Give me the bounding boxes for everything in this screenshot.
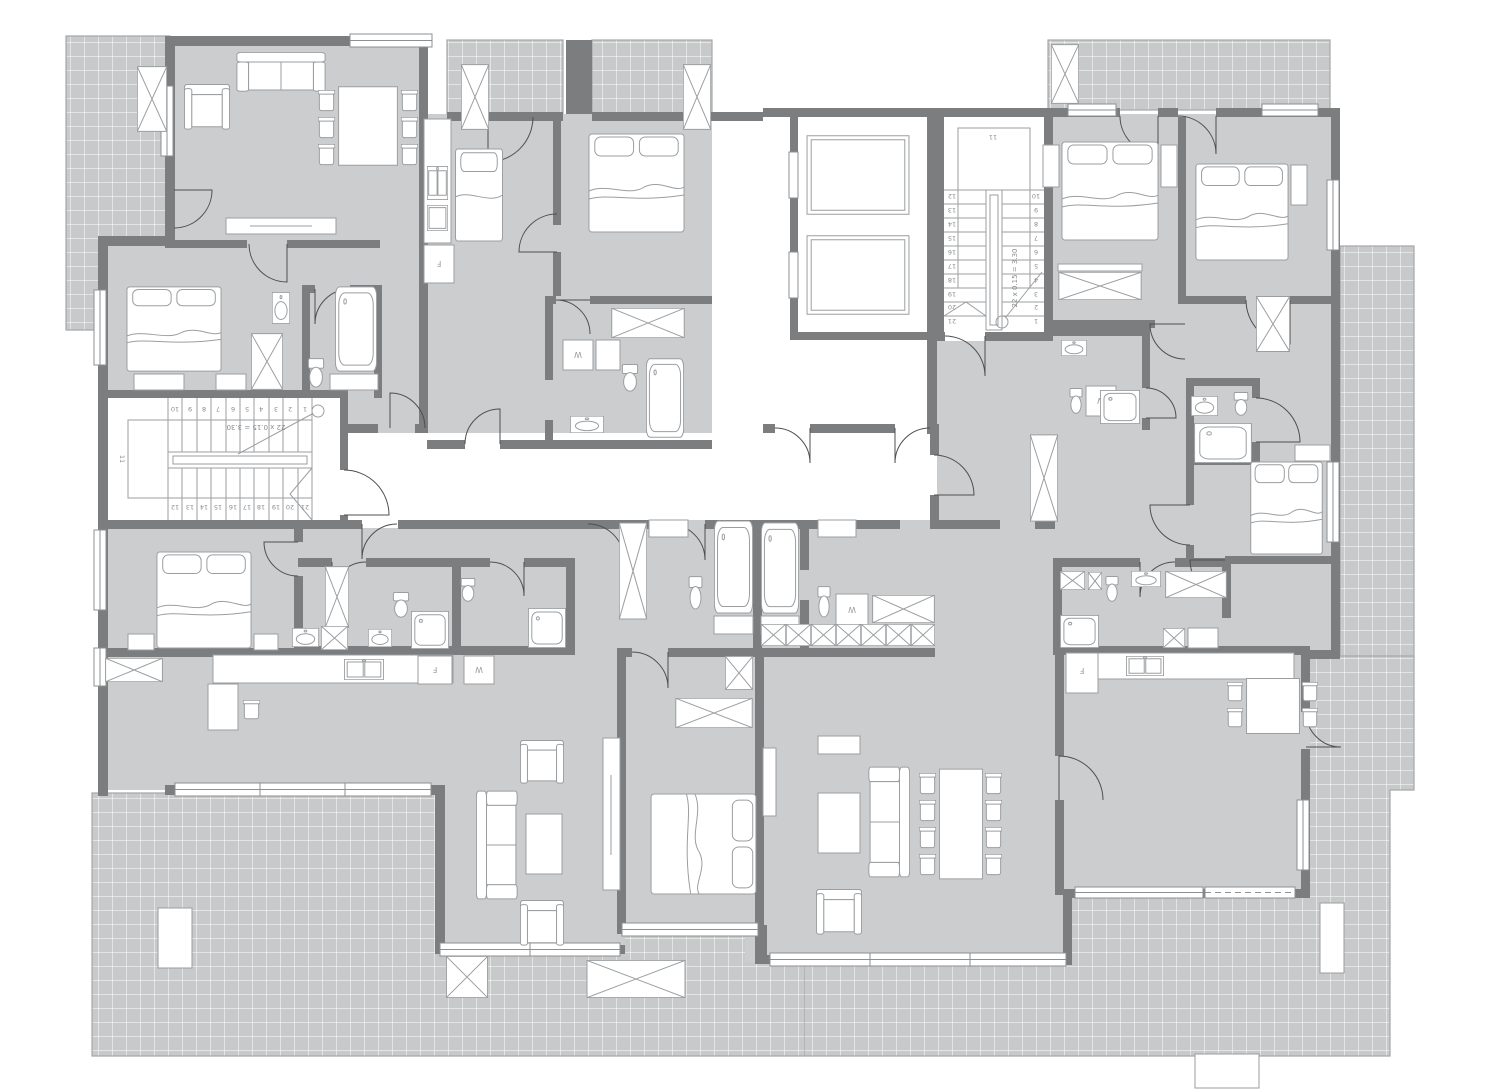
svg-text:19: 19: [948, 290, 956, 298]
chair: [919, 773, 936, 793]
chair: [919, 854, 936, 874]
nightstand: [1161, 145, 1177, 187]
stair-annotation: 22 x 0.15 = 3.30: [1011, 249, 1019, 308]
chair: [401, 90, 418, 110]
stair-handrail: [168, 452, 312, 468]
shower: [411, 611, 448, 648]
elevator-car: [807, 236, 909, 314]
nightstand: [134, 374, 184, 390]
kitchen-counter: [213, 655, 453, 683]
sink: [368, 629, 392, 647]
toilet: [461, 578, 475, 601]
coffee-table: [526, 814, 562, 874]
vanity: [649, 520, 688, 537]
window: [94, 530, 106, 610]
elevator-car: [807, 136, 909, 214]
svg-text:13: 13: [948, 206, 956, 214]
armchair: [816, 889, 861, 934]
svg-text:17: 17: [948, 262, 956, 270]
svg-text:7: 7: [1034, 234, 1038, 242]
svg-text:18: 18: [257, 503, 265, 511]
svg-text:3: 3: [1034, 290, 1038, 298]
svg-text:8: 8: [202, 405, 206, 413]
armchair: [520, 740, 563, 783]
svg-text:12: 12: [171, 503, 179, 511]
terrace-top-right: [1048, 40, 1330, 110]
svg-text:10: 10: [1032, 192, 1040, 200]
vanity: [818, 520, 856, 537]
planter: [1320, 903, 1344, 973]
window: [1327, 462, 1339, 542]
wardrobe: [251, 334, 282, 390]
wardrobe: [1088, 572, 1102, 590]
chair: [401, 117, 418, 137]
window-strip: [440, 943, 620, 956]
window-strip: [770, 953, 1066, 966]
sofa: [869, 767, 910, 877]
svg-text:1: 1: [1034, 317, 1038, 325]
sink: [1061, 340, 1086, 356]
svg-text:19: 19: [272, 503, 280, 511]
svg-text:5: 5: [1034, 262, 1038, 270]
sofa: [237, 52, 325, 91]
window: [350, 34, 432, 47]
shower: [1100, 390, 1139, 423]
toilet: [689, 577, 702, 609]
double-bed: [651, 794, 756, 894]
wardrobe: [106, 658, 163, 682]
duct-shaft: [1030, 435, 1057, 521]
window-strip: [175, 783, 431, 796]
toilet: [622, 365, 637, 392]
svg-text:8: 8: [1034, 220, 1038, 228]
nightstand: [1043, 145, 1059, 187]
wardrobe: [725, 656, 752, 689]
toilet: [818, 587, 830, 617]
chair: [318, 90, 335, 110]
svg-text:9: 9: [1034, 206, 1038, 214]
stove: [427, 205, 448, 230]
svg-text:14: 14: [948, 220, 956, 228]
nightstand: [254, 634, 278, 650]
shower: [1060, 615, 1098, 647]
floor-plan-drawing: 10 9 8 7 6 5 4 3 2 1 12 13 14 15 16 17 1…: [0, 0, 1500, 1089]
sink: [1131, 571, 1160, 587]
terrace-column: [683, 65, 710, 130]
chair: [919, 827, 936, 847]
svg-text:21: 21: [301, 503, 309, 511]
svg-text:6: 6: [231, 405, 235, 413]
side-table: [818, 736, 860, 754]
kitchen-sink: [344, 659, 383, 680]
toilet: [1106, 577, 1118, 602]
shelf: [714, 616, 753, 634]
kitchen-sink: [1126, 656, 1163, 676]
elevator-lobby: [763, 340, 930, 433]
kitchen-counter: [1066, 653, 1294, 679]
chair: [1302, 708, 1318, 727]
terrace-column: [461, 65, 488, 130]
chair: [985, 827, 1002, 847]
svg-text:2: 2: [288, 405, 292, 413]
terrace-column: [1051, 45, 1078, 104]
window-dashed: [1205, 887, 1295, 898]
svg-text:16: 16: [229, 503, 237, 511]
stair-landing-label: 11: [989, 133, 997, 141]
wardrobe: [1256, 297, 1289, 352]
wardrobe: [612, 308, 685, 337]
armchair: [520, 900, 563, 945]
sink: [292, 628, 318, 647]
toilet: [1070, 389, 1082, 414]
stair-handrail: [986, 190, 1002, 330]
washer-label: W: [475, 665, 483, 674]
bathtub: [761, 523, 798, 613]
window: [94, 648, 106, 686]
nightstand: [128, 634, 154, 650]
svg-text:3: 3: [274, 405, 278, 413]
svg-text:7: 7: [216, 405, 220, 413]
sofa: [476, 791, 517, 899]
svg-text:2: 2: [1034, 303, 1038, 311]
sink: [570, 416, 603, 433]
wardrobe: [321, 626, 347, 650]
svg-text:16: 16: [948, 248, 956, 256]
svg-text:5: 5: [245, 405, 249, 413]
sink: [272, 292, 290, 323]
terrace-column: [137, 67, 166, 132]
wardrobe: [1166, 571, 1227, 597]
double-bed: [1196, 164, 1288, 260]
chair: [243, 700, 260, 719]
wardrobe: [873, 595, 935, 622]
shelf: [596, 340, 620, 370]
terrace-column: [587, 960, 685, 997]
chair: [985, 800, 1002, 820]
chair: [318, 144, 335, 164]
terrace-column: [446, 956, 487, 997]
double-bed: [1062, 142, 1158, 240]
svg-text:20: 20: [286, 503, 294, 511]
stair-annotation: 22 x 0.15 = 3.30: [227, 423, 286, 431]
elevator-door-sill: [789, 152, 798, 198]
bathtub: [335, 287, 376, 371]
fridge-label: F: [1079, 666, 1084, 675]
sink: [1191, 396, 1217, 416]
shelf: [1188, 628, 1218, 648]
bench: [763, 748, 776, 816]
floor-plan-page: 10 9 8 7 6 5 4 3 2 1 12 13 14 15 16 17 1…: [0, 0, 1500, 1089]
svg-text:15: 15: [948, 234, 956, 242]
svg-text:17: 17: [243, 503, 251, 511]
single-bed: [455, 149, 502, 241]
window: [1262, 104, 1318, 116]
window: [1297, 800, 1309, 870]
dining-table: [1247, 679, 1300, 734]
double-bed: [157, 552, 251, 648]
shelf: [330, 374, 378, 390]
chair: [1227, 682, 1243, 701]
chair: [985, 773, 1002, 793]
chair: [1302, 682, 1318, 701]
fridge-label: F: [436, 259, 441, 268]
svg-text:21: 21: [948, 317, 956, 325]
wardrobe: [676, 698, 752, 727]
svg-text:4: 4: [259, 405, 263, 413]
double-bed: [589, 134, 684, 232]
shelf: [1058, 264, 1142, 271]
washer-label: W: [574, 350, 582, 359]
wardrobe: [325, 567, 349, 628]
washer-label: W: [848, 605, 856, 614]
svg-text:10: 10: [171, 405, 179, 413]
elevator-door-sill: [789, 252, 798, 298]
window-strip: [622, 923, 758, 936]
stair-landing-label: 11: [118, 455, 126, 463]
chair: [1227, 708, 1243, 727]
terrace-right: [1340, 246, 1414, 658]
wardrobe: [1059, 272, 1141, 299]
planter: [1195, 1054, 1259, 1088]
chair: [985, 854, 1002, 874]
svg-text:6: 6: [1034, 248, 1038, 256]
svg-text:20: 20: [948, 303, 956, 311]
chair: [401, 144, 418, 164]
svg-text:4: 4: [1034, 276, 1038, 284]
planter: [158, 908, 192, 968]
wardrobe: [1163, 628, 1185, 648]
bathtub: [646, 359, 683, 437]
wardrobe: [619, 523, 646, 619]
kitchen-sink: [427, 166, 448, 199]
fridge-label: F: [432, 665, 437, 674]
window: [1068, 104, 1116, 116]
toilet: [308, 359, 323, 388]
dining-table: [939, 769, 982, 879]
chair: [318, 117, 335, 137]
bathtub: [714, 521, 752, 613]
double-bed: [127, 287, 221, 371]
toilet: [393, 593, 408, 618]
svg-text:1: 1: [303, 405, 307, 413]
wardrobe: [1060, 571, 1085, 590]
svg-text:9: 9: [188, 405, 192, 413]
closet-run: [761, 624, 935, 646]
shower: [1195, 423, 1252, 462]
desk: [208, 684, 238, 730]
coffee-table: [818, 793, 860, 853]
svg-text:15: 15: [214, 503, 222, 511]
nightstand: [216, 374, 246, 390]
window-strip: [1075, 887, 1203, 898]
nightstand: [1291, 165, 1307, 205]
vanity: [1295, 445, 1330, 461]
double-bed: [1251, 462, 1323, 554]
toilet: [1234, 392, 1248, 415]
shower: [528, 608, 565, 647]
window: [1327, 180, 1339, 250]
dining-table: [339, 87, 398, 165]
armchair: [184, 84, 229, 129]
window: [94, 290, 106, 365]
svg-text:12: 12: [948, 192, 956, 200]
chair: [919, 800, 936, 820]
svg-text:14: 14: [200, 503, 208, 511]
svg-text:13: 13: [186, 503, 194, 511]
svg-text:18: 18: [948, 276, 956, 284]
